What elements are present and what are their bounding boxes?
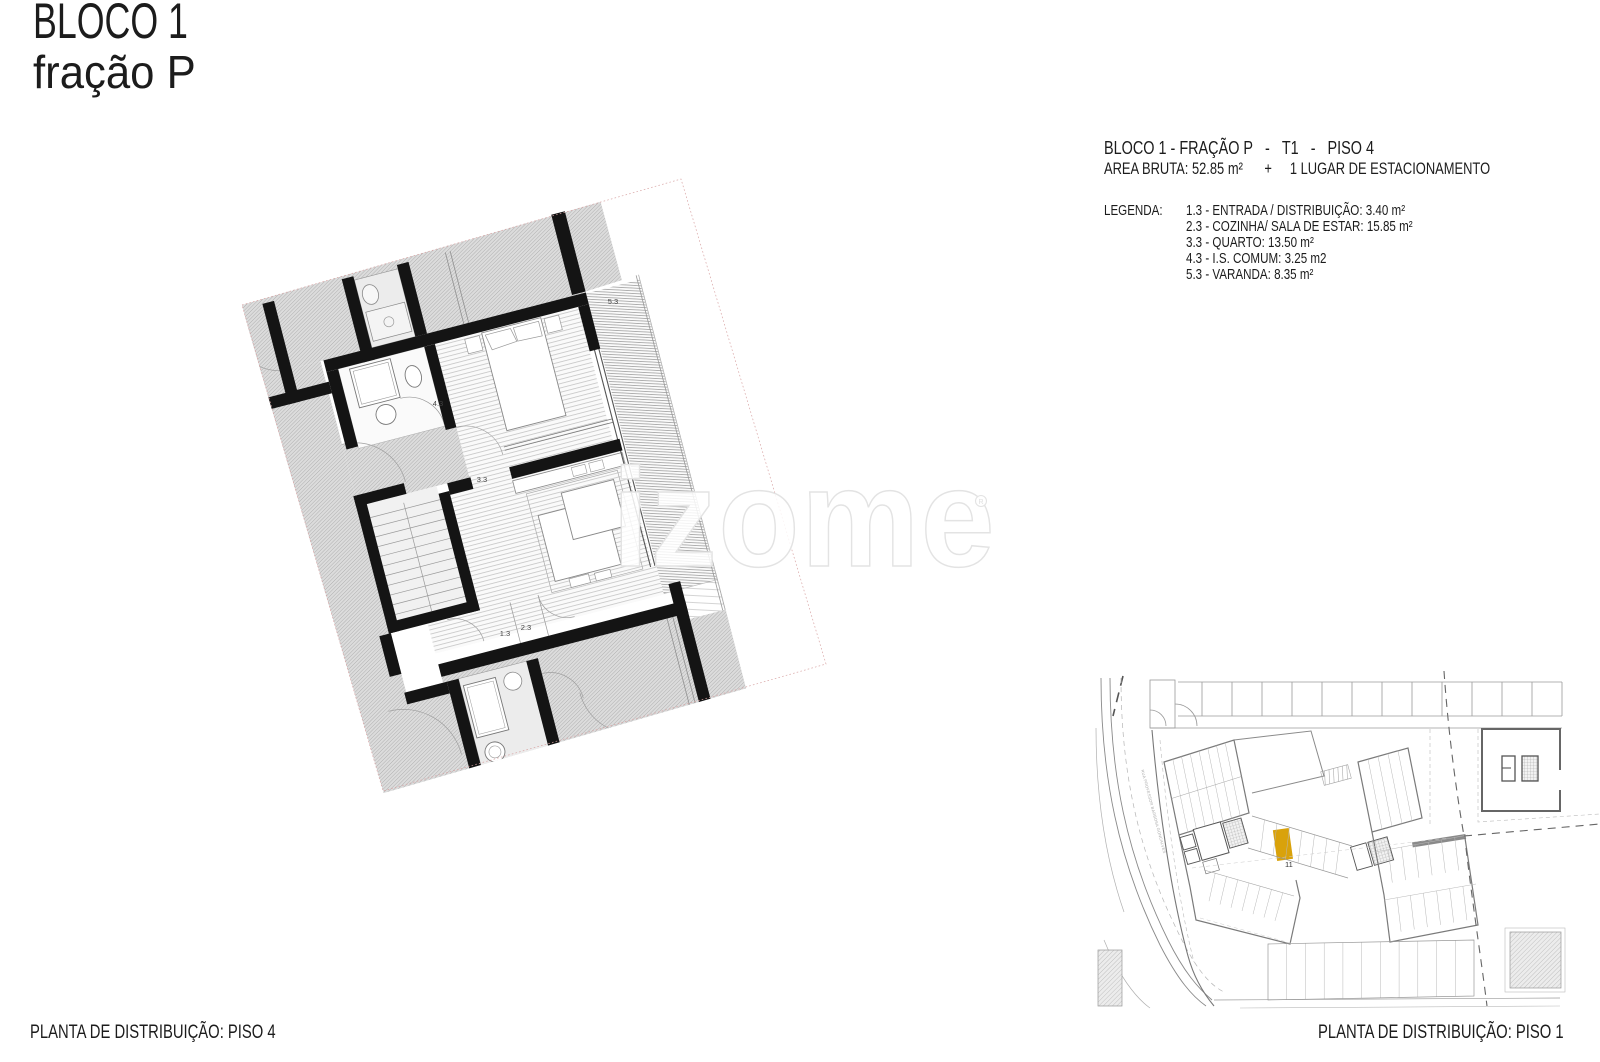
svg-text:BLOCO 1 - FRAÇÃO P - T1: BLOCO 1 - FRAÇÃO P - T1 - PISO 4 xyxy=(1104,136,1374,158)
svg-text:5.3: 5.3 xyxy=(608,297,618,306)
svg-text:RUA PROFESSOR BARBOSA GONCALVE: RUA PROFESSOR BARBOSA GONCALVES xyxy=(1140,769,1167,854)
svg-text:BLOCO 1: BLOCO 1 xyxy=(33,0,188,50)
svg-text:2.3 - COZINHA/ SALA DE ESTAR:: 2.3 - COZINHA/ SALA DE ESTAR: 15.85 m² xyxy=(1186,218,1413,235)
svg-text:fração P: fração P xyxy=(33,46,196,98)
svg-text:izome: izome xyxy=(612,439,996,596)
svg-text:3.3: 3.3 xyxy=(477,475,487,484)
svg-text:1.3: 1.3 xyxy=(500,629,510,638)
svg-text:1.3 - ENTRADA / DISTRIBUIÇÃO:: 1.3 - ENTRADA / DISTRIBUIÇÃO: 3.40 m² xyxy=(1186,202,1406,219)
svg-text:PLANTA DE DISTRIBUIÇÃO: PISO 4: PLANTA DE DISTRIBUIÇÃO: PISO 4 xyxy=(30,1020,276,1042)
svg-text:AREA BRUTA: 52.85 m² +: AREA BRUTA: 52.85 m² + 1 LUGAR DE ESTACI… xyxy=(1104,159,1490,178)
svg-text:3.3 - QUARTO: 13.50 m²: 3.3 - QUARTO: 13.50 m² xyxy=(1186,234,1314,251)
svg-text:LEGENDA:: LEGENDA: xyxy=(1104,202,1163,219)
svg-text:PLANTA DE DISTRIBUIÇÃO: PISO 1: PLANTA DE DISTRIBUIÇÃO: PISO 1 xyxy=(1318,1020,1564,1042)
svg-text:4.3: 4.3 xyxy=(433,399,443,408)
svg-text:2.3: 2.3 xyxy=(521,623,531,632)
svg-text:R: R xyxy=(978,499,983,506)
svg-text:4.3 - I.S. COMUM: 3.25 m2: 4.3 - I.S. COMUM: 3.25 m2 xyxy=(1186,250,1326,267)
svg-text:5.3 - VARANDA: 8.35 m²: 5.3 - VARANDA: 8.35 m² xyxy=(1186,266,1314,283)
